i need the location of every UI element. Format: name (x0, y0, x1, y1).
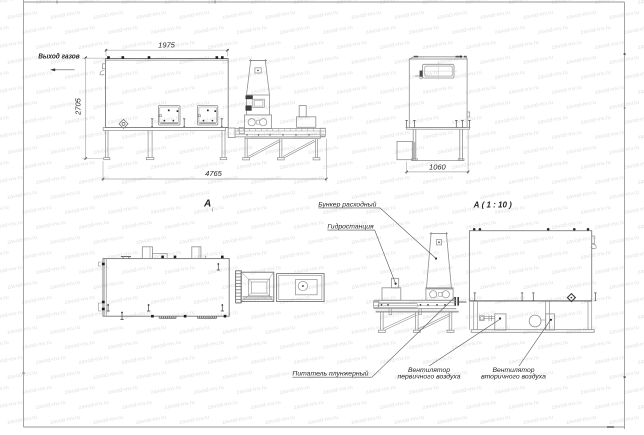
svg-text:Выход газов: Выход газов (38, 52, 80, 61)
svg-text:1060: 1060 (429, 162, 447, 171)
svg-text:Гидростанция: Гидростанция (327, 223, 374, 231)
svg-text:вторичного воздуха: вторичного воздуха (481, 373, 546, 381)
svg-text:4765: 4765 (205, 169, 223, 178)
svg-text:1975: 1975 (158, 41, 176, 50)
svg-text:Питатель плунжерный: Питатель плунжерный (292, 370, 368, 378)
svg-text:Бункер расходный: Бункер расходный (318, 200, 376, 208)
svg-text:А ( 1 : 10 ): А ( 1 : 10 ) (473, 201, 513, 210)
svg-text:А: А (203, 199, 211, 210)
svg-text:2705: 2705 (74, 97, 83, 116)
svg-text:zavod-mv.ru: zavod-mv.ru (637, 0, 644, 6)
svg-text:первичного воздуха: первичного воздуха (398, 373, 461, 381)
